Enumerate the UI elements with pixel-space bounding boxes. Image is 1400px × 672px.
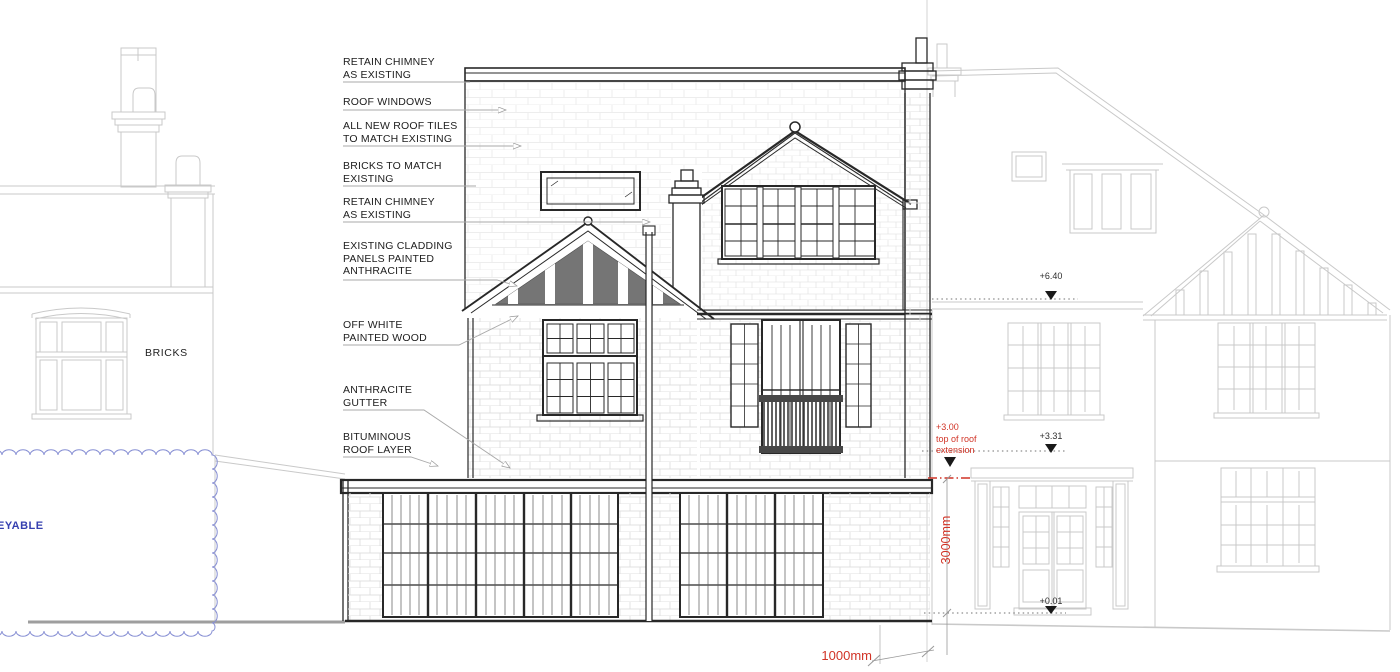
level-triangle-roof-extension xyxy=(944,457,956,467)
right-neighbour-building xyxy=(928,44,1390,631)
callout-anthracite-gutter: ANTHRACITE GUTTER xyxy=(343,384,475,409)
glazed-screen-right xyxy=(680,493,823,617)
level-ground: +0.01 xyxy=(1034,596,1068,606)
callout-off-white-wood: OFF WHITE PAINTED WOOD xyxy=(343,319,475,344)
dimension-3000mm: 3000mm xyxy=(939,500,953,580)
callout-cladding-panels: EXISTING CLADDING PANELS PAINTED ANTHRAC… xyxy=(343,240,475,278)
label-roof-extension-level: +3.00 top of roof extension xyxy=(936,422,1006,457)
callout-roof-tiles: ALL NEW ROOF TILES TO MATCH EXISTING xyxy=(343,120,475,145)
boundary-chimney xyxy=(899,38,936,478)
dimension-1000mm: 1000mm xyxy=(810,648,872,663)
callout-bituminous-roof: BITUMINOUS ROOF LAYER xyxy=(343,431,475,456)
left-neighbour-building xyxy=(0,48,345,621)
label-bricks: BRICKS xyxy=(145,347,188,359)
elevation-drawing: RETAIN CHIMNEY AS EXISTING ROOF WINDOWS … xyxy=(0,0,1400,672)
callout-roof-windows: ROOF WINDOWS xyxy=(343,96,475,109)
callout-bricks-match: BRICKS TO MATCH EXISTING xyxy=(343,160,475,185)
glazed-screen-left xyxy=(383,493,618,617)
level-eaves: +6.40 xyxy=(1034,271,1068,281)
balcony-bottom-rail xyxy=(759,446,843,453)
level-triangle-porch xyxy=(1045,444,1057,453)
callout-retain-chimney-2: RETAIN CHIMNEY AS EXISTING xyxy=(343,196,475,221)
revision-cloud xyxy=(0,450,217,636)
casement-window xyxy=(537,320,643,421)
elevation-linework xyxy=(0,0,1400,672)
balcony-top-rail xyxy=(759,395,843,402)
anthracite-gutter-fascia xyxy=(341,480,932,493)
callout-retain-chimney-1: RETAIN CHIMNEY AS EXISTING xyxy=(343,56,475,81)
level-porch: +3.31 xyxy=(1034,431,1068,441)
rear-extension xyxy=(341,480,932,621)
label-revision-note: EYABLE xyxy=(0,520,44,532)
